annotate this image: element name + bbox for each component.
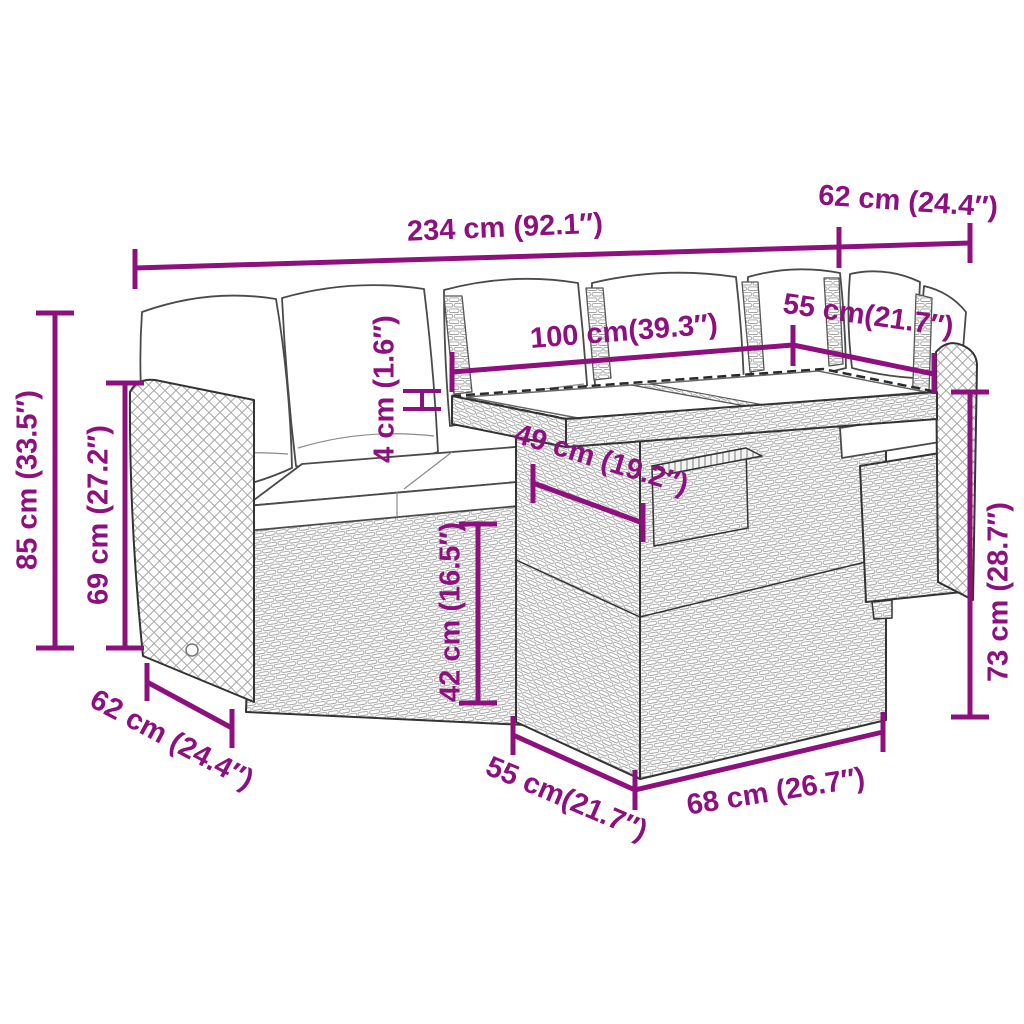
dim-total-height-label: 85 cm (33.5″) (12, 390, 44, 570)
dim-backrest-height-label: 69 cm (27.2″) (83, 425, 115, 605)
dim-corner-depth-top: 62 cm (24.4″) (817, 179, 999, 263)
dim-table-height-label: 73 cm (28.7″) (983, 502, 1015, 682)
sofa-base (246, 502, 548, 726)
dim-total-height: 85 cm (33.5″) (12, 313, 74, 648)
dim-seat-height-label: 42 cm (16.5″) (435, 522, 467, 702)
product-dimension-diagram: 234 cm (92.1″) 62 cm (24.4″) 100 cm(39.3… (0, 0, 1024, 1024)
armrest-rivet (186, 644, 198, 656)
sofa-foot (872, 600, 892, 619)
back-cushion (282, 285, 438, 470)
dim-total-width-label: 234 cm (92.1″) (406, 208, 603, 248)
diagram-svg: 234 cm (92.1″) 62 cm (24.4″) 100 cm(39.3… (0, 0, 1024, 1024)
table-base (516, 421, 886, 779)
dim-glass-thickness-label: 4 cm (1.6″) (369, 315, 401, 463)
dim-corner-depth-top-label: 62 cm (24.4″) (817, 179, 999, 223)
